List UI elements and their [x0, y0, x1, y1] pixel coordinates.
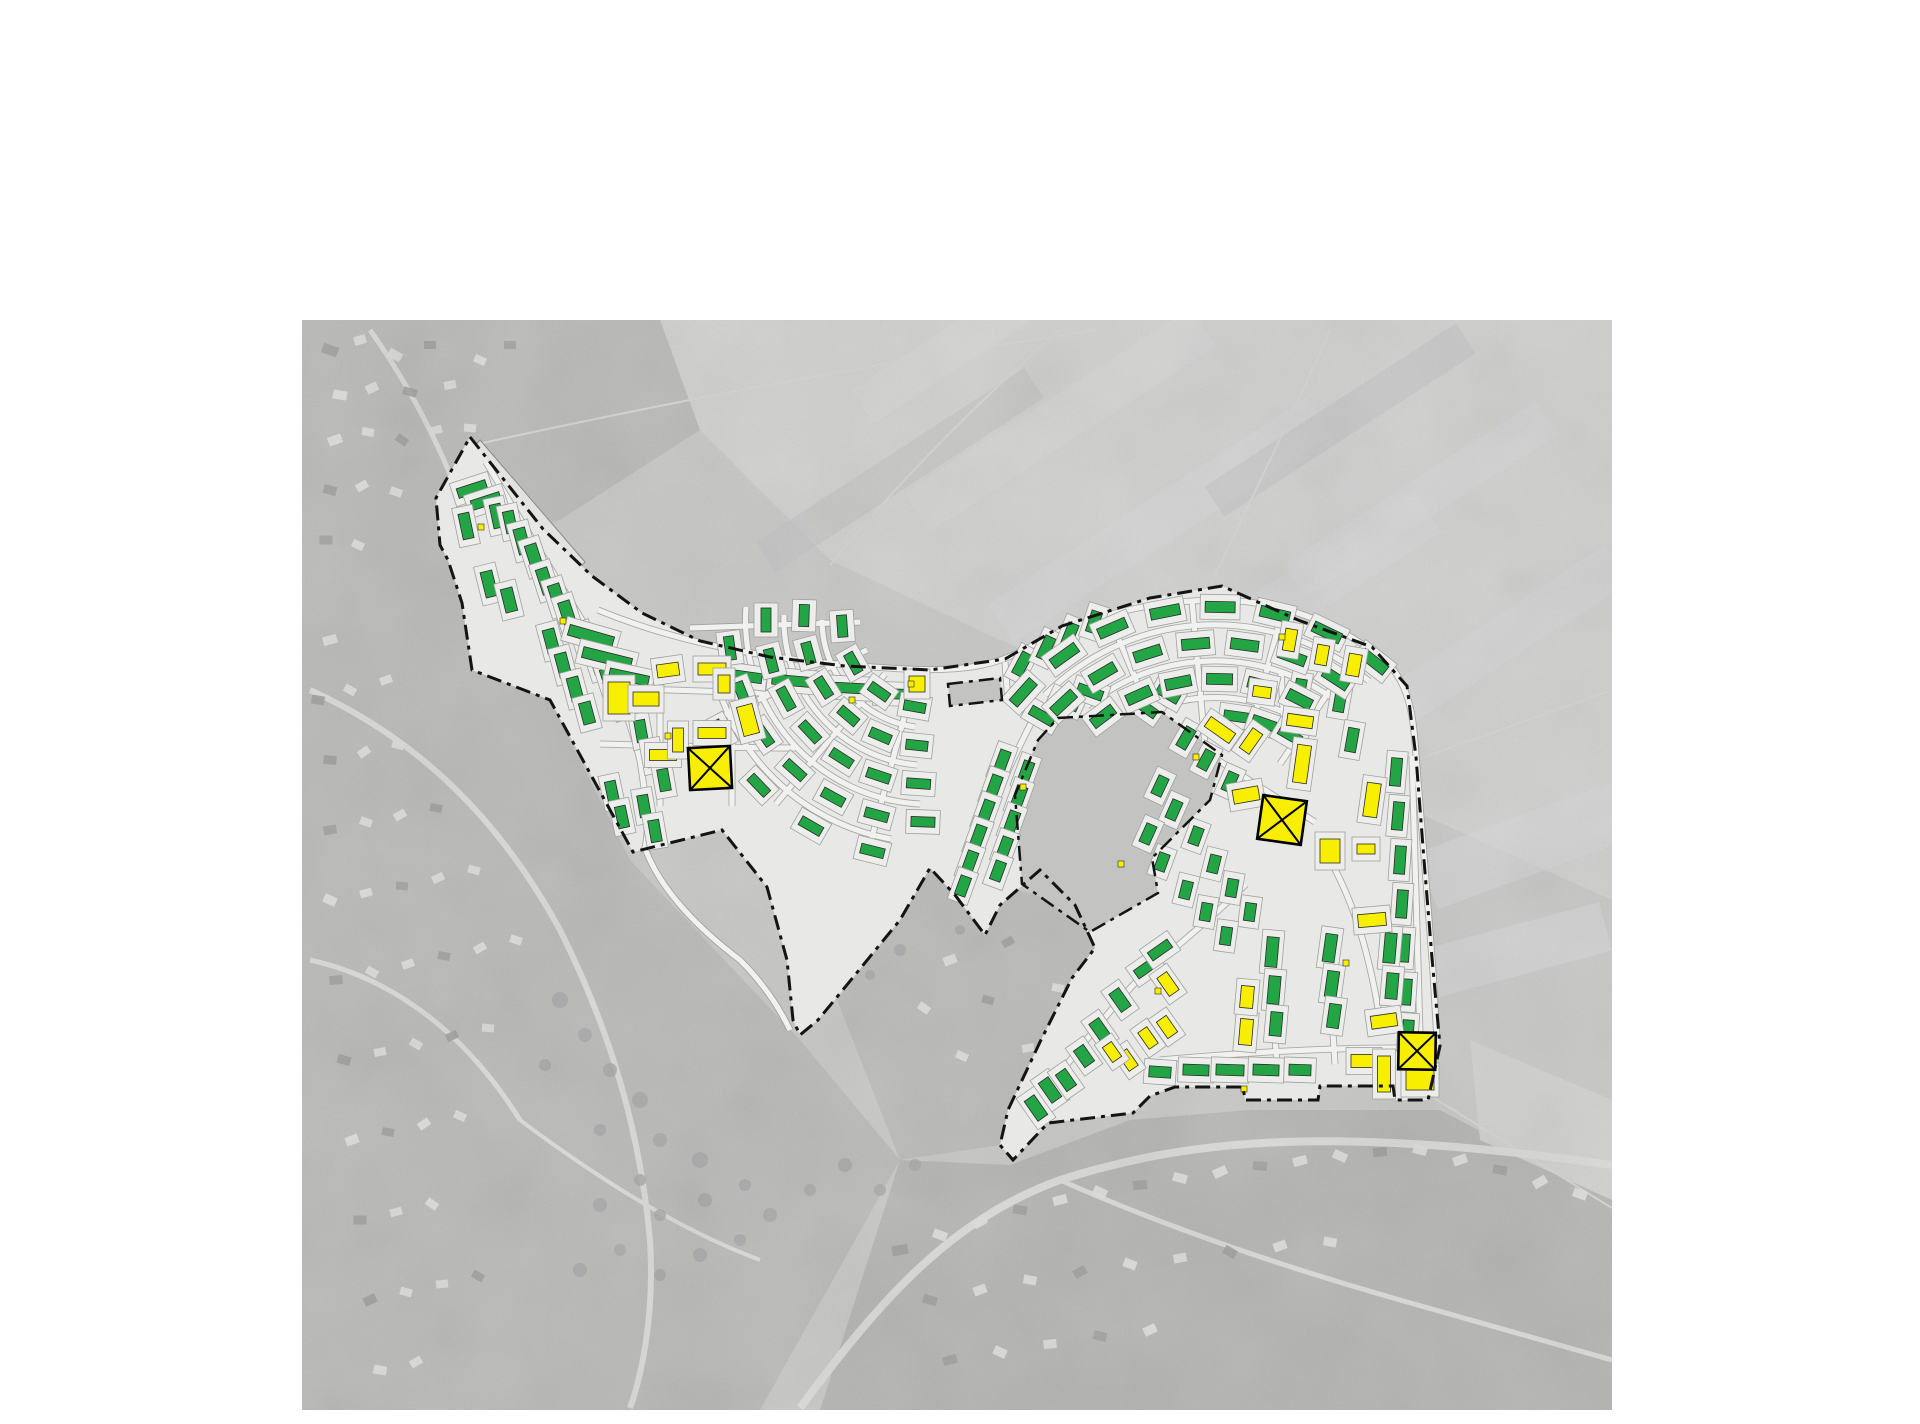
yellow-marker — [478, 524, 484, 530]
green-building — [1265, 937, 1280, 968]
green-building — [1183, 1064, 1209, 1076]
green-building — [1394, 846, 1407, 875]
community-site-southeast — [1398, 1032, 1436, 1070]
green-building — [1391, 802, 1404, 831]
green-building — [1219, 926, 1232, 945]
yellow-building — [673, 728, 684, 752]
green-building — [1216, 1064, 1244, 1076]
green-building — [1389, 758, 1402, 787]
yellow-building — [656, 662, 680, 678]
green-building — [1181, 637, 1210, 650]
green-building — [1253, 1064, 1279, 1076]
page — [0, 0, 1920, 1424]
green-building — [1385, 973, 1399, 1000]
green-building — [1243, 902, 1256, 921]
yellow-building — [1320, 839, 1340, 863]
yellow-building — [698, 728, 726, 739]
yellow-marker — [908, 681, 914, 687]
green-building — [905, 739, 928, 751]
yellow-building — [1357, 912, 1386, 927]
map-canvas[interactable] — [0, 0, 1920, 1424]
green-building — [1206, 673, 1232, 685]
yellow-building — [1240, 985, 1255, 1008]
yellow-marker — [665, 733, 671, 739]
masterplan-map[interactable] — [0, 0, 1920, 1424]
green-building — [1396, 890, 1409, 919]
green-building — [906, 778, 931, 790]
yellow-building — [1357, 844, 1375, 854]
yellow-building — [1238, 1018, 1253, 1045]
green-building — [1205, 601, 1235, 613]
green-building — [799, 604, 810, 626]
yellow-building — [608, 682, 630, 714]
yellow-marker — [1279, 634, 1285, 640]
green-building — [1149, 1066, 1172, 1079]
yellow-marker — [849, 697, 855, 703]
yellow-building — [633, 692, 659, 706]
yellow-marker — [1155, 988, 1161, 994]
green-building — [911, 816, 935, 827]
yellow-building — [718, 675, 730, 693]
green-building — [761, 608, 771, 632]
green-building — [1267, 976, 1281, 1005]
yellow-marker — [1118, 861, 1124, 867]
yellow-marker — [1193, 754, 1199, 760]
green-building — [1289, 1064, 1311, 1076]
green-building — [836, 615, 848, 638]
green-building — [1383, 933, 1398, 964]
yellow-marker — [560, 618, 566, 624]
yellow-marker — [1020, 784, 1026, 790]
green-building — [1269, 1012, 1283, 1037]
yellow-marker — [1343, 960, 1349, 966]
community-site-west — [688, 746, 732, 790]
yellow-building — [1252, 685, 1271, 698]
community-site-northeast — [1257, 795, 1307, 845]
